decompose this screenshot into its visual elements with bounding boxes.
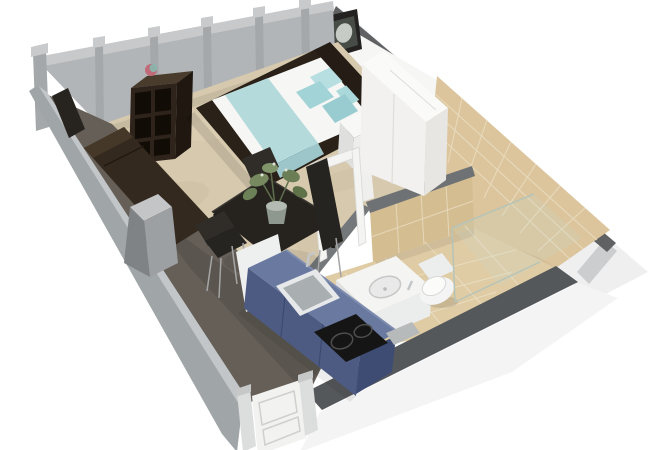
plant-flower xyxy=(285,169,288,172)
plant-flower xyxy=(261,174,264,177)
window-post-cap xyxy=(201,16,213,28)
floorplan-render xyxy=(0,0,650,450)
vanity-drain xyxy=(383,287,387,291)
shelf-cubby xyxy=(135,117,151,139)
window-post-cap xyxy=(148,26,160,38)
floorplan-svg xyxy=(0,0,650,450)
window-post-cap xyxy=(93,36,105,48)
window-post xyxy=(203,24,212,94)
plant-leaves xyxy=(262,163,278,173)
shelf-cubby xyxy=(135,91,151,115)
window-post xyxy=(255,14,264,77)
shelf-cubby xyxy=(155,88,171,112)
window-post xyxy=(95,44,104,129)
window-post-cap xyxy=(253,6,265,18)
decor-ball-accent xyxy=(150,64,158,72)
shelf-cubby xyxy=(154,138,170,156)
plant-pot-rim xyxy=(266,201,287,211)
shelf-cubby xyxy=(155,114,171,136)
plant-flower xyxy=(273,163,276,166)
